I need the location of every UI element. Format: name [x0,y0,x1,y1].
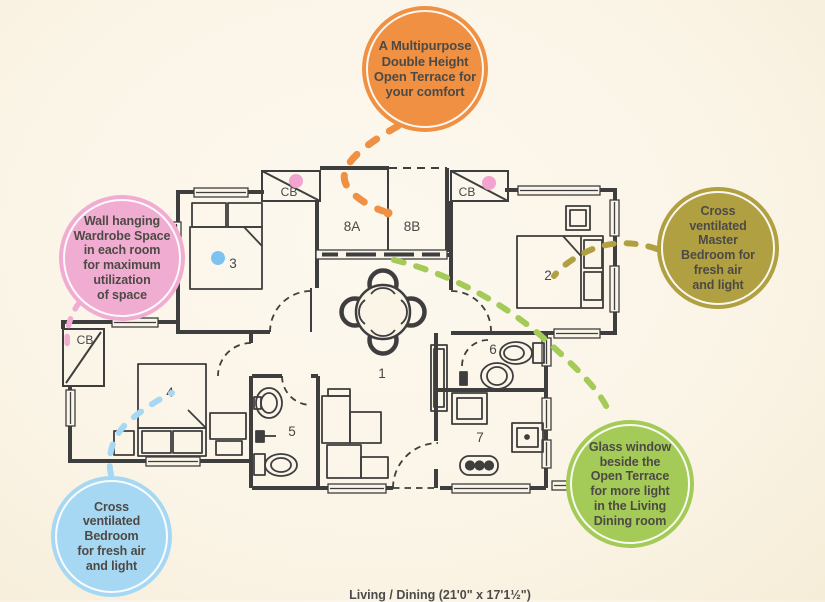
bubble-open-terrace: A Multipurpose Double Height Open Terrac… [362,6,488,132]
furniture [114,203,603,478]
label-kitchen-7: 7 [476,430,484,445]
brochure-page: 1 2 3 4 5 6 7 8A 8B CB CB CB [0,0,825,600]
sofa-unit [322,389,388,478]
bathroom6-fixtures [460,342,544,389]
connector-master [554,243,657,276]
bed-master-room2 [517,206,603,308]
bubble-wardrobe-space: Wall hanging Wardrobe Space in each room… [59,195,185,321]
kitchen-fixtures [452,393,543,475]
label-cupboard-2: CB [459,185,476,199]
label-bedroom-3: 3 [229,256,237,271]
label-living-dining: 1 [378,366,386,381]
terrace-glass-window [316,250,447,259]
label-bath-5: 5 [288,424,296,439]
bed-room3 [190,203,262,289]
bed-room4 [114,364,246,456]
pink-dot-cupboard2 [482,176,496,190]
bubble-master-bedroom: Cross ventilated Master Bedroom for fres… [657,187,779,309]
bubble-cross-ventilated-bedroom: Cross ventilated Bedroom for fresh air a… [51,476,172,597]
pink-dot-cupboard1 [289,174,303,188]
label-master-bedroom: 2 [544,268,552,283]
label-terrace-8a: 8A [344,219,361,234]
label-bath-6: 6 [489,342,497,357]
label-cupboard-3: CB [77,333,94,347]
tv-unit [431,345,447,411]
blue-dot-bedroom3 [211,251,225,265]
bubble-glass-window: Glass window beside the Open Terrace for… [566,420,694,548]
connector-terrace-end-dot [384,209,393,218]
label-terrace-8b: 8B [404,219,421,234]
dining-table [342,271,425,354]
